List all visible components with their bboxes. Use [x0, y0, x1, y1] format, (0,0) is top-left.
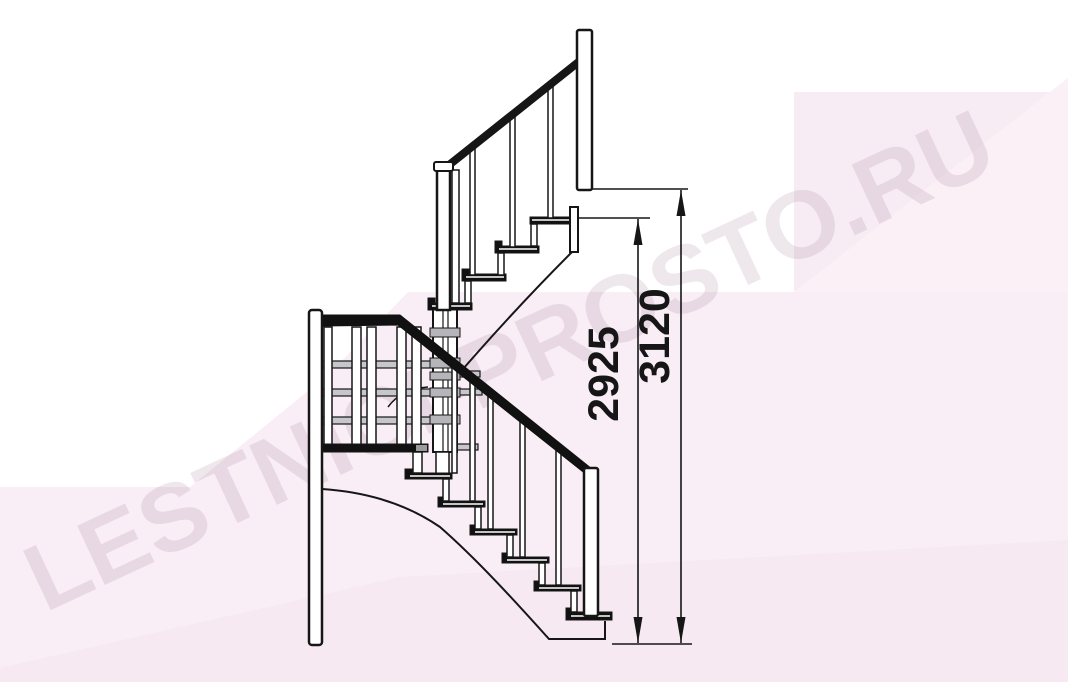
tread-connector: [475, 507, 481, 529]
winder-baluster: [412, 327, 421, 447]
winder-baluster: [397, 327, 406, 447]
tread-cap: [462, 269, 469, 281]
winder-baluster: [352, 327, 361, 447]
middle-newel-cap: [434, 162, 453, 171]
winder-section: [322, 308, 482, 474]
top-step-end-board: [570, 207, 578, 252]
middle-newel-post: [437, 170, 450, 310]
column-connector: [430, 328, 460, 337]
tread-cap: [405, 469, 412, 479]
left-landing-post: [309, 310, 322, 645]
baluster: [510, 114, 515, 247]
arrow-up-icon: [634, 219, 643, 245]
landing-support: [436, 452, 449, 474]
diagram-page: LESTNICI-PROSTO.RU: [0, 0, 1068, 682]
baluster: [488, 396, 493, 529]
tread-cap: [495, 241, 502, 253]
tread-connector: [498, 253, 504, 275]
tread-connector: [443, 479, 449, 501]
baluster: [452, 170, 459, 303]
baluster: [520, 421, 525, 557]
top-newel-post: [577, 30, 592, 190]
baluster: [452, 367, 457, 473]
landing-floor: [322, 444, 428, 452]
arrow-up-icon: [677, 190, 686, 216]
bottom-newel-post: [584, 468, 598, 616]
baluster: [470, 381, 475, 501]
tread-connector: [507, 535, 513, 557]
dimension-label-2925: 2925: [580, 326, 628, 422]
baluster: [470, 146, 475, 275]
tread-connector: [539, 563, 545, 585]
dimension-label-3120: 3120: [631, 288, 679, 384]
landing-floor-bracket: [416, 445, 427, 451]
staircase-drawing-canvas: LESTNICI-PROSTO.RU: [0, 0, 1068, 682]
upper-tread-connectors: [465, 224, 537, 303]
winder-baluster: [367, 327, 376, 447]
tread-connector: [465, 281, 471, 303]
baluster: [556, 450, 561, 585]
tread-cap: [428, 298, 435, 310]
winder-baluster: [324, 327, 332, 447]
tread-connector: [531, 224, 537, 246]
baluster: [548, 84, 553, 218]
tread-connector: [571, 591, 577, 612]
landing-support: [413, 452, 422, 473]
